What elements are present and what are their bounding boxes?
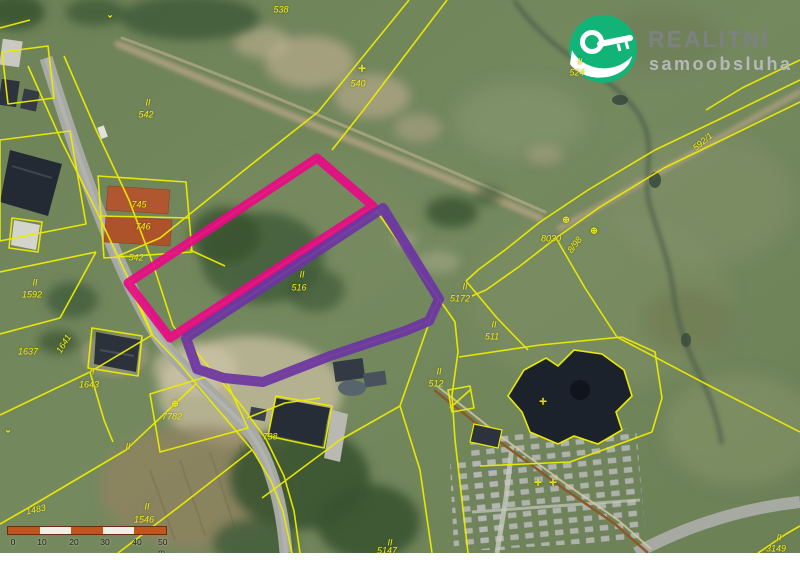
scale-bar-segment: [134, 527, 166, 534]
map-scale-bar: 01020304050 m: [6, 523, 176, 551]
scale-bar-tick-label: 20: [69, 537, 78, 547]
scale-bar-segment: [71, 527, 103, 534]
map-application: REALITNÍ samoobsluha 538II542540II524592…: [0, 0, 800, 577]
scale-bar-tick-label: 0: [11, 537, 16, 547]
brand-name: REALITNÍ: [648, 26, 770, 53]
scale-bar-segment: [40, 527, 72, 534]
bottom-whitespace: [0, 553, 800, 577]
scale-bar-tick-label: 40: [132, 537, 141, 547]
scale-bar-segment: [8, 527, 40, 534]
map-viewport[interactable]: REALITNÍ samoobsluha 538II542540II524592…: [0, 0, 800, 553]
key-in-hand-icon: [556, 11, 648, 103]
scale-bar-tick-label: 50 m: [158, 537, 170, 553]
scale-bar-tick-label: 10: [37, 537, 46, 547]
scale-bar-segments: [7, 526, 167, 535]
scale-bar-segment: [103, 527, 135, 534]
brand-logo: REALITNÍ samoobsluha: [548, 0, 800, 92]
brand-subtitle: samoobsluha: [649, 54, 793, 75]
scale-bar-tick-label: 30: [100, 537, 109, 547]
